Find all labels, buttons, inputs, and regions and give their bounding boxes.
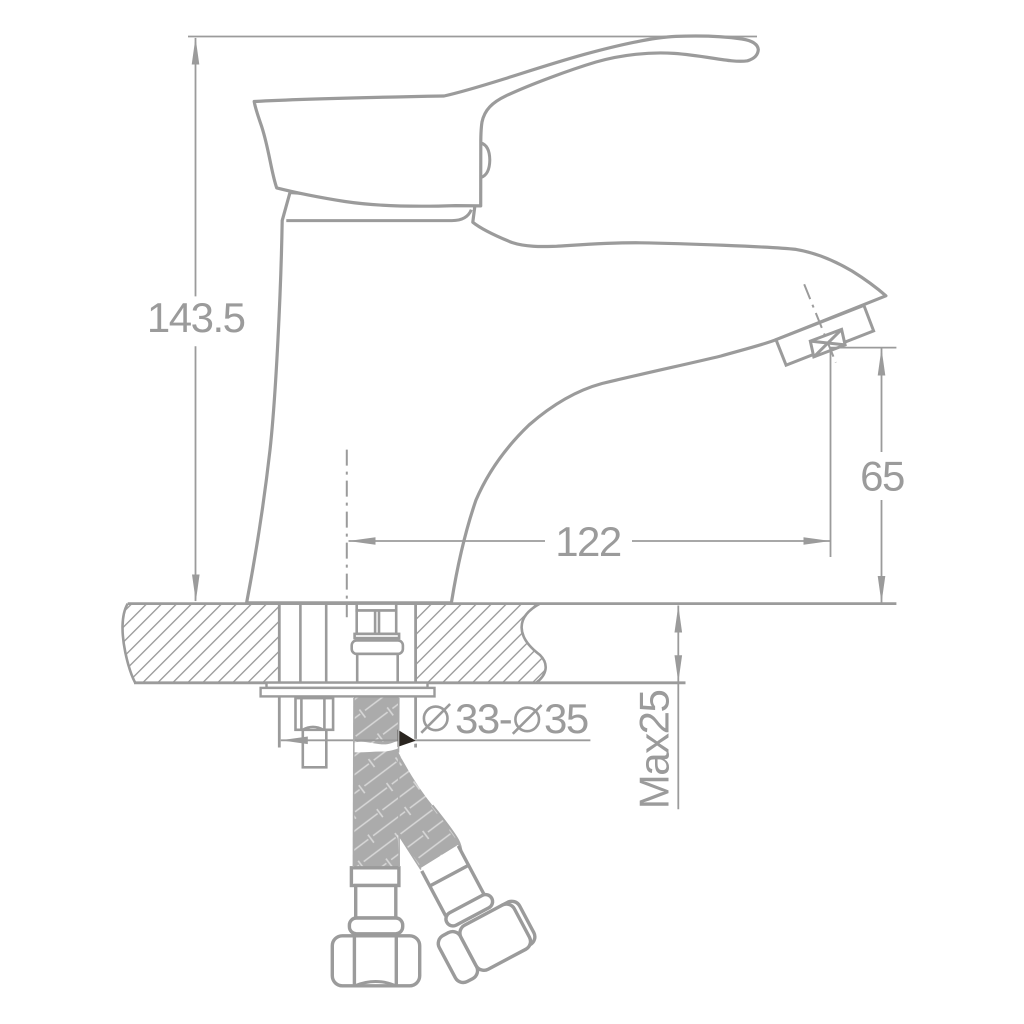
svg-text:122: 122 xyxy=(555,518,621,565)
svg-text:65: 65 xyxy=(860,453,904,500)
svg-text:143.5: 143.5 xyxy=(147,294,245,341)
svg-text:Max25: Max25 xyxy=(631,690,678,809)
svg-text:35: 35 xyxy=(544,695,588,742)
svg-text:33-: 33- xyxy=(455,695,512,742)
